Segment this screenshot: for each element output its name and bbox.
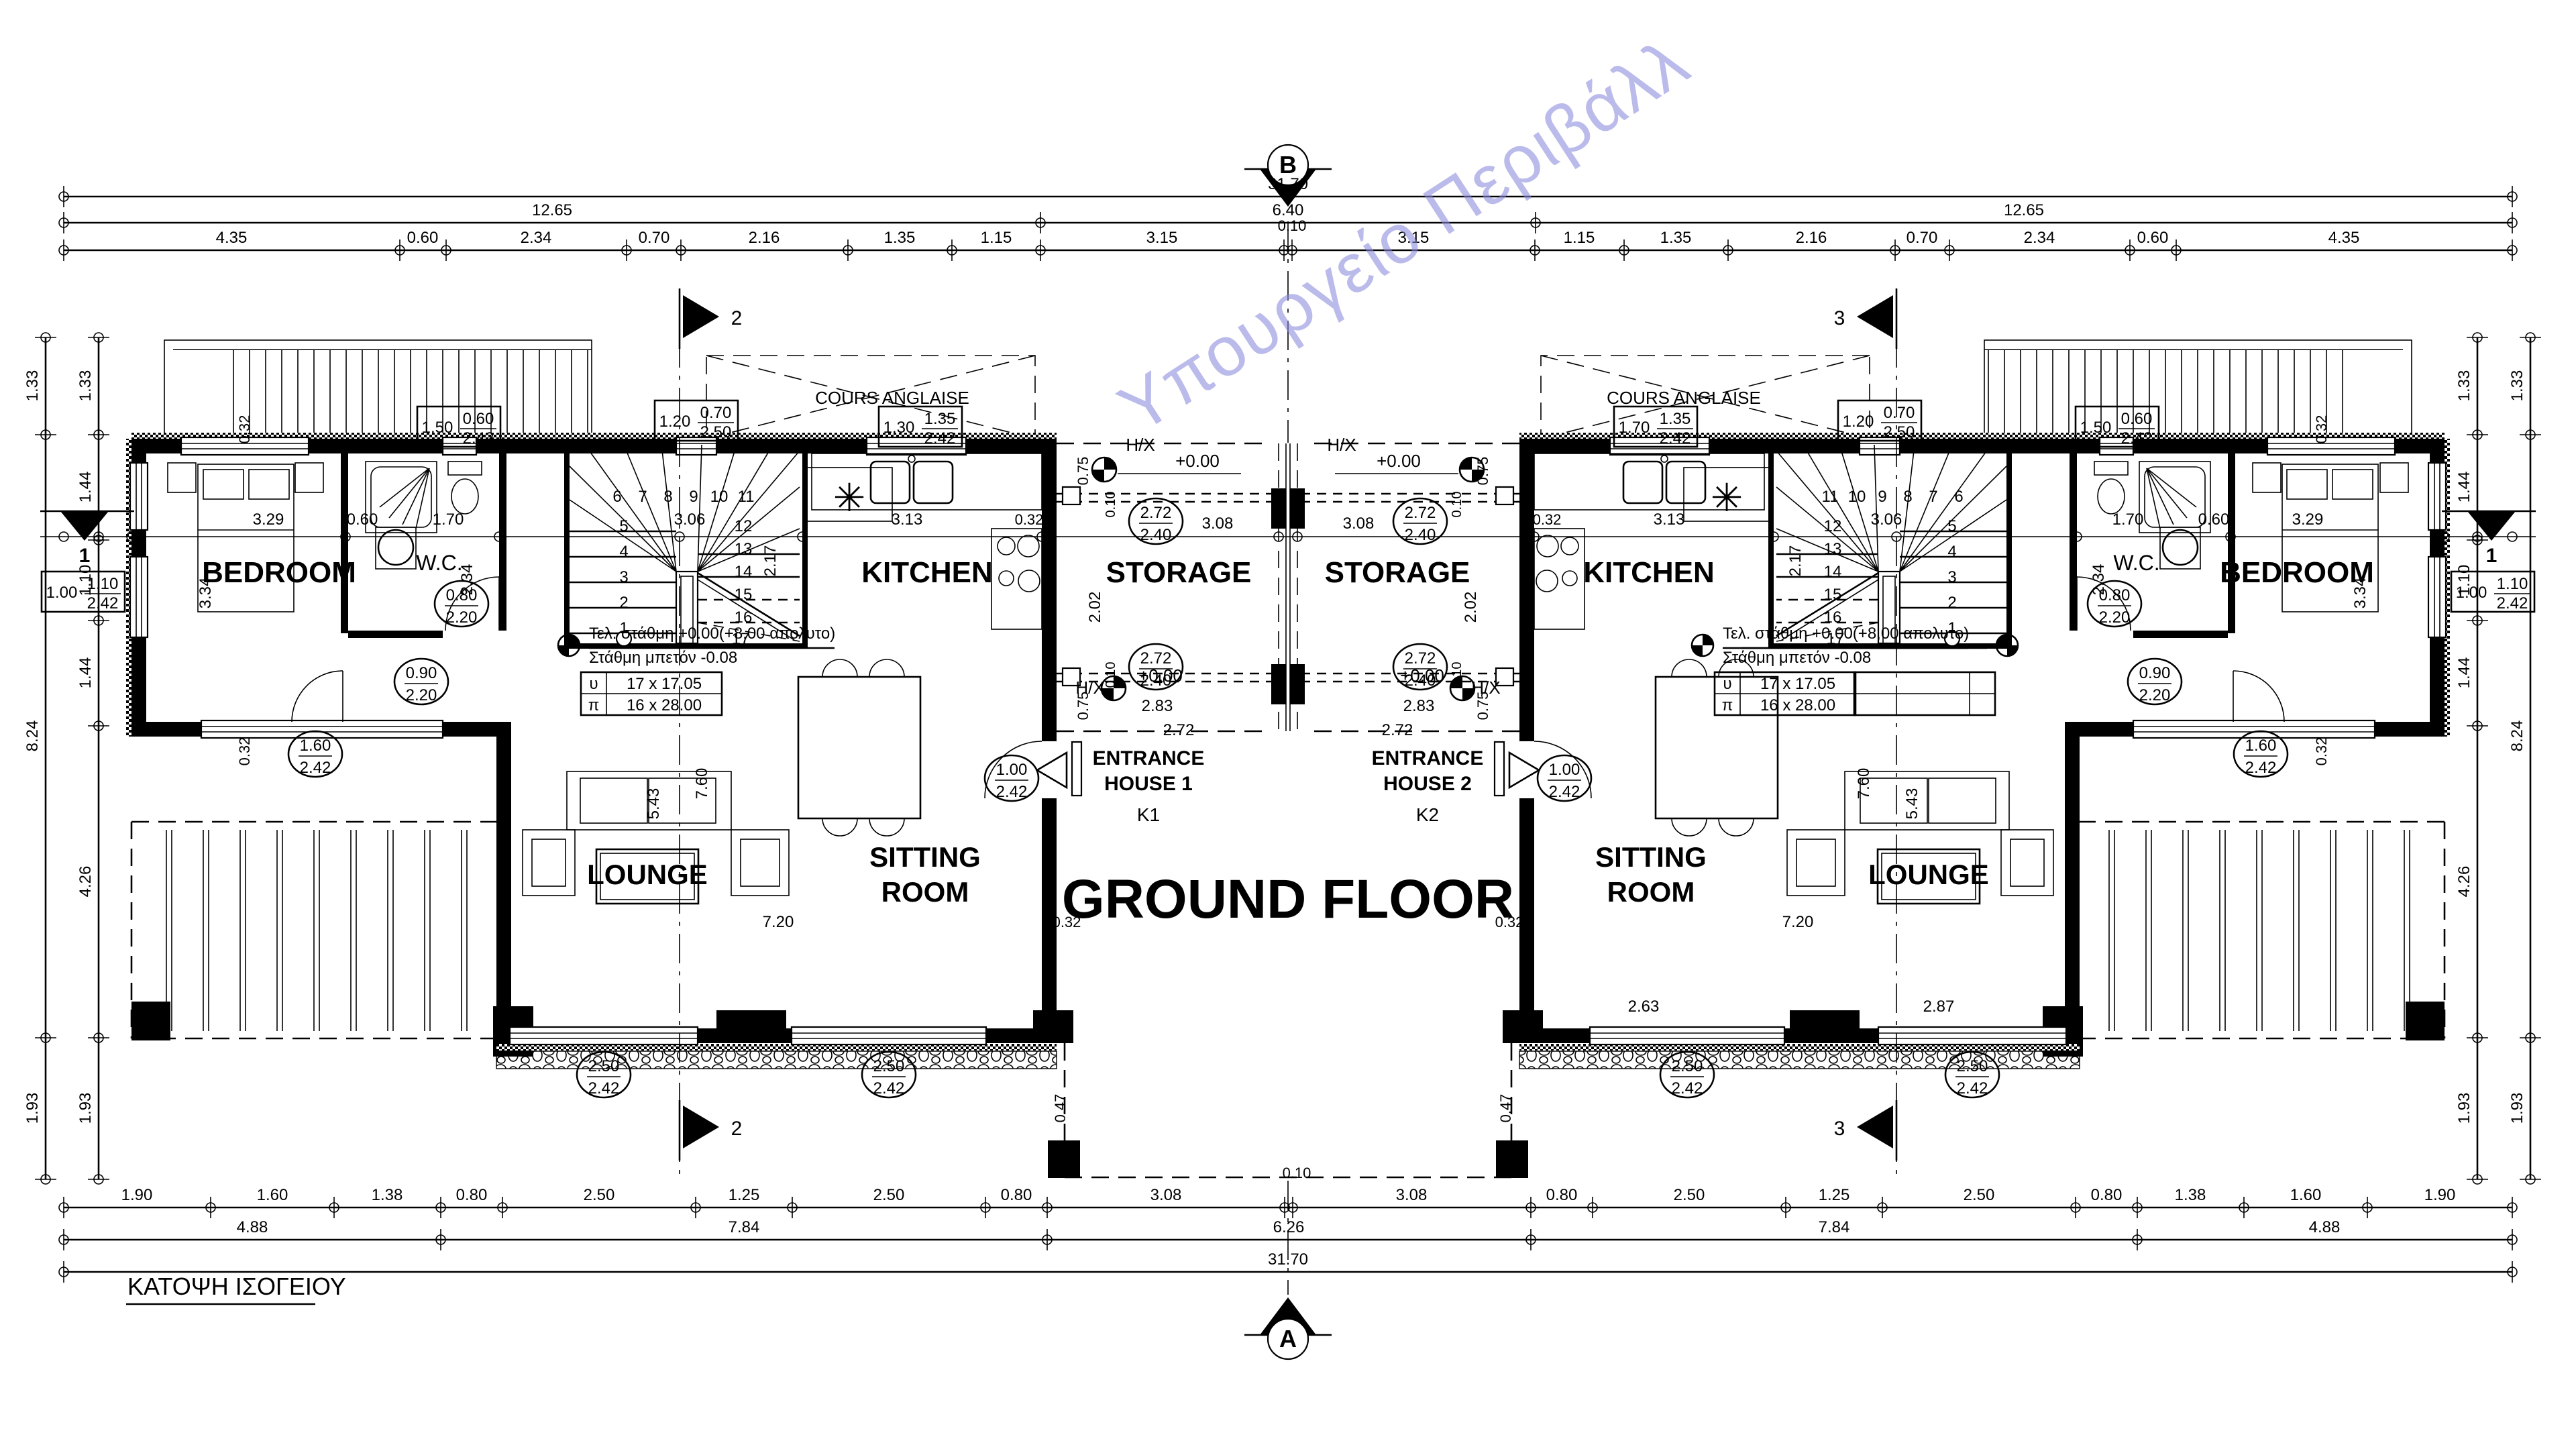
tag-bot: 2.42	[924, 429, 956, 447]
hx-marker: +0.00	[1377, 451, 1421, 471]
window-tag-oval: 2.722.40	[1393, 498, 1447, 544]
dim-label: 3.08	[1150, 1186, 1182, 1204]
window-tag-oval: 0.902.20	[2128, 659, 2182, 704]
marker-2-top	[680, 288, 719, 349]
marker-1-right: 1	[2486, 545, 2498, 567]
tag-width: 1.50	[422, 419, 453, 437]
dim: 3.08	[1202, 515, 1234, 533]
dim-col: 1.331.441.101.444.261.93	[2455, 333, 2488, 1184]
dim: 0.32	[236, 415, 253, 444]
dim: 0.32	[2313, 737, 2330, 766]
tag-width: 2.72	[1140, 649, 1172, 667]
dim-label: 4.35	[216, 229, 248, 247]
tag-height: 2.40	[1405, 526, 1436, 544]
dim-label: 1.35	[1660, 229, 1692, 247]
dim: 0.10	[1283, 1165, 1311, 1181]
deck-terrace	[164, 340, 592, 439]
dim-label: 2.34	[521, 229, 552, 247]
stair-num: 7	[638, 488, 647, 506]
entrance-1-code: K1	[1137, 804, 1160, 825]
dim: 3.13	[892, 511, 923, 529]
stair-num: 2	[1947, 594, 1956, 612]
tag-width: 2.50	[1957, 1057, 1988, 1075]
stair-num: 11	[738, 488, 755, 506]
entrance-1: ENTRANCE	[1093, 747, 1205, 769]
dim: 0.10	[1104, 662, 1118, 688]
room-label-storage-2: STORAGE	[1325, 556, 1470, 589]
level-note-2: Τελ. στάθμη +0.00(+8,00 απολυτο)	[1723, 625, 1969, 643]
stair-num: 16	[735, 608, 753, 627]
stair-num: 15	[1824, 586, 1842, 604]
marker-2-top: 2	[731, 307, 743, 329]
hx-marker: H/X	[1126, 435, 1155, 455]
stair-table-1: 17 x 17.05	[627, 675, 702, 693]
cours-anglaise-2: COURS ANGLAISE	[1607, 388, 1761, 408]
dim-label: 4.26	[2455, 866, 2473, 898]
window-tag-oval: 1.002.42	[1538, 755, 1591, 801]
tag-bot: 2.42	[1660, 429, 1691, 447]
drawing-label: ΚΑΤΟΨΗ ΙΣΟΓΕΙΟΥ	[127, 1273, 346, 1300]
dim-label: 3.08	[1396, 1186, 1428, 1204]
tag-top: 1.10	[87, 575, 119, 593]
dim-label: 0.80	[1546, 1186, 1578, 1204]
tag-top: 0.60	[2121, 410, 2153, 428]
dim-label: 1.35	[884, 229, 916, 247]
stair-num: 2	[619, 594, 628, 612]
dim: 2.83	[1403, 697, 1435, 715]
room-label-bedroom-1: BEDROOM	[202, 556, 356, 589]
stair-num: 9	[689, 488, 698, 506]
dim: 0.10	[1450, 492, 1464, 518]
dim-label: 6.26	[1273, 1218, 1305, 1236]
room-label-sitting-1b: ROOM	[881, 876, 969, 908]
hx-marker: +0.00	[1138, 665, 1183, 686]
tag-width: 2.72	[1405, 504, 1436, 522]
dim-label: 1.38	[372, 1186, 403, 1204]
tag-width: 0.90	[2139, 664, 2171, 682]
tag-width: 1.70	[1619, 419, 1650, 437]
dim: 0.10	[1278, 217, 1307, 234]
dim: 5.43	[645, 788, 663, 820]
dim: 7.20	[1782, 913, 1814, 931]
hx-marker: H/X	[1327, 435, 1356, 455]
dim: 0.10	[1450, 662, 1464, 688]
pergola	[131, 822, 500, 1038]
window	[130, 463, 148, 530]
dim-label: 0.80	[2091, 1186, 2123, 1204]
dim: 0.60	[347, 511, 378, 529]
tag-width: 2.50	[873, 1057, 905, 1075]
dim-label: 0.80	[1001, 1186, 1032, 1204]
tag-top: 1.35	[1660, 410, 1691, 428]
stair-table-1: υ	[589, 675, 598, 693]
window	[130, 557, 148, 637]
room-label-storage-1: STORAGE	[1106, 556, 1252, 589]
dim-label: 4.88	[237, 1218, 268, 1236]
tag-bot: 2.50	[700, 423, 732, 441]
stair-table-1: 16 x 28.00	[627, 696, 702, 714]
dim-label: 1.60	[2290, 1186, 2322, 1204]
dim-label: 31.70	[1268, 1250, 1308, 1269]
tag-height: 2.42	[588, 1079, 620, 1097]
tag-width: 1.60	[300, 737, 331, 755]
dim-label: 1.38	[2175, 1186, 2206, 1204]
dim: 5.43	[1903, 788, 1921, 820]
marker-2-bottom	[680, 1100, 719, 1161]
tag-height: 2.42	[1549, 783, 1580, 801]
dim-col: 1.338.241.93	[23, 333, 56, 1184]
dim-label: 1.15	[1564, 229, 1595, 247]
dim-label: 1.25	[729, 1186, 760, 1204]
entrance-2-code: K2	[1416, 804, 1439, 825]
dim: 0.32	[1533, 511, 1562, 528]
dim-label: 0.60	[2137, 229, 2169, 247]
dim-label: 1.93	[76, 1093, 95, 1124]
stair-num: 13	[735, 540, 753, 558]
dim-label: 4.26	[76, 866, 95, 898]
stair-num: 17	[1827, 630, 1845, 648]
stair-num: 5	[1947, 517, 1956, 535]
tag-width: 1.00	[46, 584, 78, 602]
dim: 3.06	[674, 511, 706, 529]
stair-table-2: 16 x 28.00	[1760, 696, 1835, 714]
dim: 3.08	[1343, 515, 1375, 533]
tag-height: 2.40	[1140, 526, 1172, 544]
floorplan-canvas: 31.7012.656.4012.654.350.602.340.702.161…	[0, 0, 2576, 1449]
marker-3-bottom: 3	[1834, 1118, 1845, 1140]
dim: 2.02	[1086, 592, 1104, 623]
dim: 0.75	[1474, 692, 1491, 720]
opening-tags: 1.602.420.802.200.902.201.002.422.502.42…	[42, 400, 2534, 1097]
dim-label: 1.33	[23, 370, 42, 402]
dim-label: 1.44	[76, 472, 95, 503]
stair-num: 1	[619, 619, 628, 637]
dim: 0.75	[1075, 692, 1091, 720]
tag-width: 1.60	[2245, 737, 2277, 755]
stair-num: 7	[1929, 488, 1937, 506]
dim: 1.70	[433, 511, 464, 529]
dim-label: 6.40	[1273, 201, 1304, 219]
room-label-kitchen-2: KITCHEN	[1583, 556, 1715, 589]
tag-bot: 2.42	[87, 594, 119, 612]
tag-height: 2.42	[996, 783, 1028, 801]
stair-num: 15	[735, 586, 753, 604]
room-label-sitting-2b: ROOM	[1607, 876, 1695, 908]
window-tag-oval: 2.502.42	[862, 1052, 916, 1097]
entrance-2: ENTRANCE	[1372, 747, 1484, 769]
tag-height: 2.42	[1672, 1079, 1703, 1097]
dim-label: 1.33	[76, 370, 95, 402]
stair-num: 10	[710, 488, 729, 506]
stair-num: 16	[1824, 608, 1842, 627]
dim-label: 1.90	[2424, 1186, 2456, 1204]
dim: 0.60	[2198, 511, 2230, 529]
tag-width: 2.72	[1140, 504, 1172, 522]
level-note-2: Στάθμη μπετόν -0.08	[1723, 649, 1871, 667]
room-label-lounge-2: LOUNGE	[1868, 859, 1989, 890]
tag-bot: 2.42	[463, 429, 494, 447]
stair-num: 12	[735, 517, 753, 535]
stair-num: 11	[1822, 488, 1839, 506]
tag-width: 2.50	[588, 1057, 620, 1075]
dim: 0.47	[1052, 1094, 1069, 1123]
dim: 2.02	[1462, 592, 1480, 623]
dim-label: 1.90	[121, 1186, 153, 1204]
room-label-wc-2: W.C.	[2113, 551, 2159, 575]
tag-top: 1.10	[2497, 575, 2528, 593]
dim: 1.70	[2112, 511, 2144, 529]
dim: 2.34	[458, 564, 476, 596]
tag-height: 2.20	[2099, 608, 2131, 627]
stair-num: 6	[612, 488, 621, 506]
room-label-kitchen-1: KITCHEN	[861, 556, 993, 589]
dim-label: 1.60	[257, 1186, 288, 1204]
window-tag-oval: 1.002.42	[985, 755, 1038, 801]
dim: 3.34	[197, 578, 215, 609]
stair-num: 8	[663, 488, 672, 506]
dim-label: 1.44	[2455, 472, 2473, 503]
stair-num: 1	[1947, 619, 1956, 637]
hvac-icon: ✳	[833, 476, 866, 520]
dim: 2.63	[1628, 998, 1660, 1016]
dim-label: 8.24	[23, 720, 42, 752]
window	[792, 1027, 986, 1044]
dim-label: 2.50	[1674, 1186, 1705, 1204]
dim-label: 8.24	[2508, 720, 2526, 752]
dim-label: 3.15	[1146, 229, 1178, 247]
bedroom-furniture	[168, 463, 323, 612]
tag-width: 2.50	[1672, 1057, 1703, 1075]
dim: 2.72	[1382, 721, 1413, 739]
dim: 3.06	[1871, 511, 1902, 529]
room-label-wc-1: W.C.	[416, 551, 462, 575]
dim-label: 1.93	[23, 1093, 42, 1124]
dim-label: 12.65	[2004, 201, 2044, 219]
marker-a-letter: A	[1279, 1325, 1297, 1352]
dim: 0.75	[1075, 457, 1091, 486]
tag-height: 2.42	[300, 759, 331, 777]
dim-label: 2.16	[1796, 229, 1827, 247]
dim-col: 1.331.441.101.444.261.93	[76, 333, 109, 1184]
dim: 2.83	[1142, 697, 1173, 715]
dim: 3.13	[1654, 511, 1685, 529]
tag-top: 0.70	[700, 404, 732, 422]
dim-label: 0.60	[407, 229, 439, 247]
dim-label: 0.70	[1907, 229, 1938, 247]
stair-num: 13	[1824, 540, 1842, 558]
dim: 0.32	[1015, 511, 1044, 528]
marker-3-top	[1857, 288, 1896, 349]
window	[201, 720, 443, 738]
tag-height: 2.42	[2245, 759, 2277, 777]
stair-num: 14	[735, 563, 753, 581]
dim: 7.20	[763, 913, 794, 931]
stair-num: 5	[619, 517, 628, 535]
dim-label: 1.93	[2508, 1093, 2526, 1124]
dim: 7.60	[1855, 768, 1873, 800]
window-tag-oval: 2.722.40	[1129, 498, 1183, 544]
dim-label: 4.35	[2328, 229, 2360, 247]
tag-height: 2.42	[873, 1079, 905, 1097]
dim: 2.17	[761, 545, 780, 577]
stair-num: 17	[732, 630, 750, 648]
dim-label: 2.50	[584, 1186, 615, 1204]
stair-num: 3	[619, 568, 628, 586]
tag-bot: 2.50	[1884, 423, 1915, 441]
window-tag-oval: 2.502.42	[1660, 1052, 1714, 1097]
tag-height: 2.42	[1957, 1079, 1988, 1097]
dim-label: 7.84	[729, 1218, 760, 1236]
tag-width: 1.00	[2456, 584, 2487, 602]
dim-label: 12.65	[532, 201, 572, 219]
dim: 0.32	[2313, 415, 2330, 444]
window-tag-oval: 2.502.42	[1945, 1052, 1999, 1097]
hx-marker: +0.00	[1400, 665, 1444, 686]
stair-table-2: 17 x 17.05	[1760, 675, 1835, 693]
window-tag-oval: 2.502.42	[577, 1052, 631, 1097]
tag-height: 2.20	[406, 686, 437, 704]
marker-3-top: 3	[1834, 307, 1845, 329]
tag-height: 2.20	[446, 608, 478, 627]
tag-bot: 2.42	[2121, 429, 2153, 447]
cours-anglaise-1: COURS ANGLAISE	[815, 388, 969, 408]
floor-plan-sheet: 31.7012.656.4012.654.350.602.340.702.161…	[0, 0, 2576, 1449]
stair-num: 6	[1954, 488, 1963, 506]
window	[510, 1027, 698, 1044]
dim-label: 1.93	[2455, 1093, 2473, 1124]
dim: 2.87	[1923, 998, 1955, 1016]
dim-label: 1.44	[76, 657, 95, 689]
window-tag-oval: 1.602.42	[288, 731, 342, 777]
stair-num: 8	[1903, 488, 1912, 506]
dim: 0.47	[1497, 1094, 1514, 1123]
dim-label: 7.84	[1819, 1218, 1850, 1236]
tag-width: 1.30	[883, 419, 915, 437]
dim-label: 2.50	[873, 1186, 905, 1204]
tag-width: 1.00	[1549, 761, 1580, 779]
tag-width: 0.90	[406, 664, 437, 682]
dim: 2.72	[1163, 721, 1195, 739]
dim-label: 0.70	[639, 229, 670, 247]
tag-width: 1.50	[2080, 419, 2112, 437]
axes	[40, 221, 2536, 1295]
tag-top: 0.70	[1884, 404, 1915, 422]
dim-label: 1.33	[2508, 370, 2526, 402]
level-note-1: Στάθμη μπετόν -0.08	[589, 649, 737, 667]
marker-1-left: 1	[79, 545, 91, 567]
stair-num: 3	[1947, 568, 1956, 586]
hx-marker: +0.00	[1175, 451, 1220, 471]
marker-2-bottom: 2	[731, 1118, 743, 1140]
tag-width: 1.20	[1843, 413, 1874, 431]
dim: 2.34	[2090, 564, 2108, 596]
stair-num: 4	[1947, 543, 1956, 561]
stair-num: 9	[1878, 488, 1886, 506]
page-title: GROUND FLOOR	[1062, 869, 1514, 930]
dim-label: 2.50	[1964, 1186, 1995, 1204]
stair-num: 10	[1848, 488, 1866, 506]
tag-width: 1.20	[659, 413, 691, 431]
dim-label: 2.16	[749, 229, 780, 247]
dim: 7.60	[693, 768, 711, 800]
dim: 2.17	[1786, 545, 1805, 577]
stair-table-2: υ	[1723, 675, 1731, 693]
dim: 3.29	[253, 511, 284, 529]
dim-label: 2.34	[2024, 229, 2055, 247]
dim: 0.32	[236, 737, 253, 766]
dim-label: 1.25	[1819, 1186, 1850, 1204]
hvac-icon: ✳	[1711, 476, 1743, 520]
tag-width: 1.00	[996, 761, 1028, 779]
stair-num: 12	[1824, 517, 1842, 535]
dim-label: 0.80	[456, 1186, 488, 1204]
dim: 3.29	[2292, 511, 2324, 529]
dim-label: 4.88	[2309, 1218, 2341, 1236]
walkway	[1065, 1043, 1288, 1177]
window-tag-oval: 0.902.20	[394, 659, 448, 704]
marker-3-bottom	[1857, 1100, 1896, 1161]
dim: 0.75	[1474, 457, 1491, 486]
room-label-sitting-1: SITTING	[869, 841, 981, 873]
dim-label: 3.15	[1398, 229, 1430, 247]
tag-top: 1.35	[924, 410, 956, 428]
dim-col: 1.338.241.93	[2508, 333, 2541, 1184]
stair-num: 4	[619, 543, 628, 561]
dim-row: 31.70	[59, 1250, 2517, 1283]
dim-label: 1.44	[2455, 657, 2473, 689]
dim: 0.10	[1104, 492, 1118, 518]
tag-top: 0.60	[463, 410, 494, 428]
tag-width: 2.72	[1405, 649, 1436, 667]
entrance-2: HOUSE 2	[1383, 773, 1472, 795]
window-tag-oval: 1.602.42	[2234, 731, 2288, 777]
entrance-1: HOUSE 1	[1104, 773, 1193, 795]
stair-table-2: π	[1722, 696, 1733, 714]
stair-table-1: π	[588, 696, 600, 714]
dim: 3.34	[2351, 578, 2369, 609]
room-label-sitting-2: SITTING	[1595, 841, 1707, 873]
dim-label: 1.33	[2455, 370, 2473, 402]
stair-num: 14	[1824, 563, 1842, 581]
dim-label: 1.15	[981, 229, 1012, 247]
tag-bot: 2.42	[2497, 594, 2528, 612]
tag-height: 2.20	[2139, 686, 2171, 704]
room-label-lounge-1: LOUNGE	[587, 859, 708, 890]
marker-b-letter: B	[1279, 151, 1297, 178]
